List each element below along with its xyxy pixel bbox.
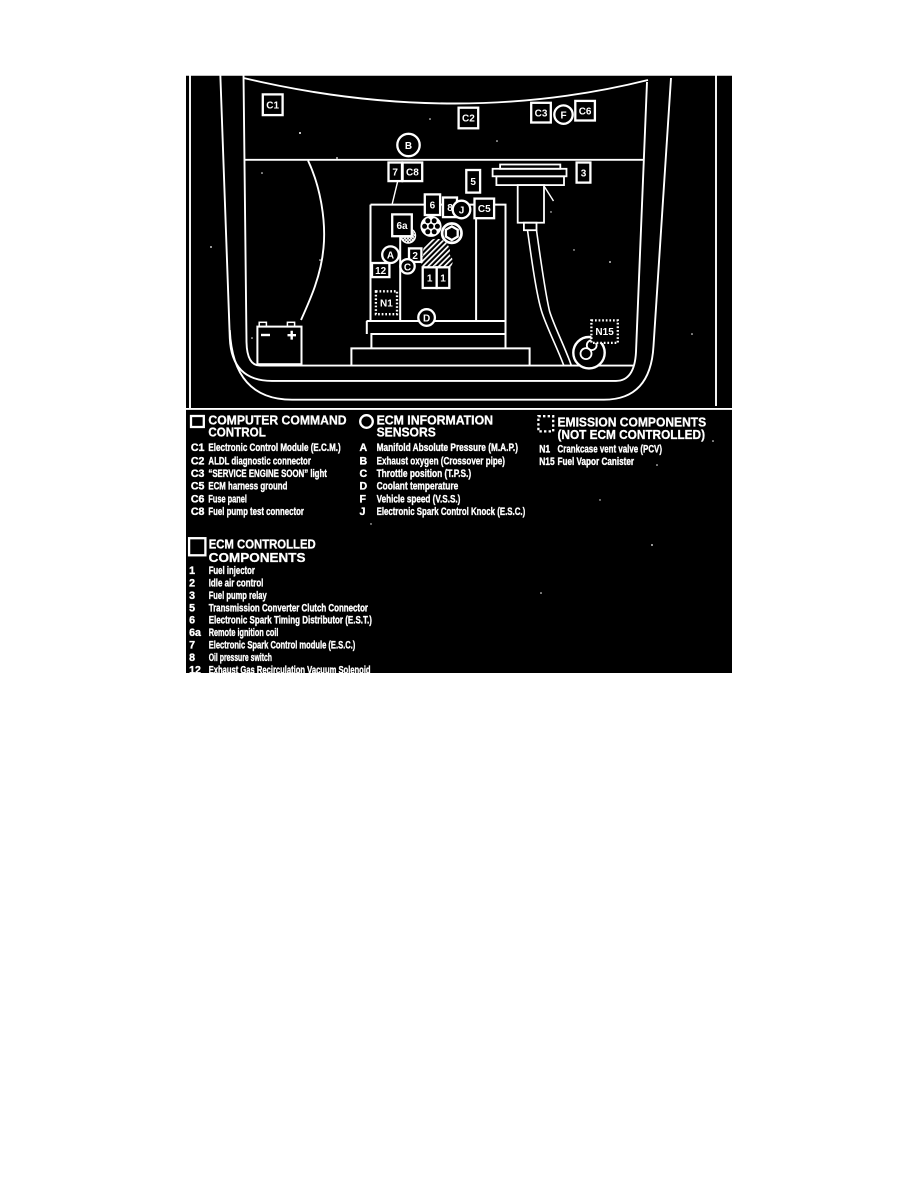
- svg-text:N1: N1: [380, 298, 393, 309]
- svg-text:3: 3: [189, 590, 195, 602]
- svg-text:6a: 6a: [189, 627, 201, 639]
- svg-text:SENSORS: SENSORS: [377, 425, 436, 440]
- svg-text:J: J: [360, 506, 366, 518]
- svg-text:8: 8: [189, 652, 195, 664]
- svg-text:C: C: [404, 262, 411, 273]
- svg-text:3: 3: [581, 168, 587, 179]
- svg-text:A: A: [387, 251, 394, 262]
- svg-text:(NOT ECM CONTROLLED): (NOT ECM CONTROLLED): [558, 427, 706, 442]
- svg-text:Exhaust Gas Recirculation Vacu: Exhaust Gas Recirculation Vacuum Solenoi…: [209, 664, 371, 673]
- svg-text:ALDL diagnostic connector: ALDL diagnostic connector: [208, 455, 311, 467]
- svg-text:Fuel pump relay: Fuel pump relay: [209, 590, 267, 602]
- svg-text:Fuse panel: Fuse panel: [208, 493, 247, 505]
- svg-text:Exhaust oxygen (Crossover pipe: Exhaust oxygen (Crossover pipe): [377, 455, 505, 467]
- svg-text:N15: N15: [539, 456, 555, 468]
- svg-text:1: 1: [189, 565, 195, 577]
- svg-text:Manifold Absolute Pressure (M.: Manifold Absolute Pressure (M.A.P.): [377, 442, 518, 454]
- svg-text:“SERVICE ENGINE SOON” light: “SERVICE ENGINE SOON” light: [208, 468, 327, 480]
- svg-text:1: 1: [440, 273, 446, 284]
- svg-text:12: 12: [189, 664, 201, 673]
- svg-text:C2: C2: [462, 114, 475, 125]
- svg-text:C6: C6: [191, 493, 205, 505]
- svg-text:C: C: [360, 468, 368, 480]
- svg-text:COMPONENTS: COMPONENTS: [209, 550, 306, 565]
- svg-text:1: 1: [427, 273, 433, 284]
- svg-text:Electronic Spark Timing Distri: Electronic Spark Timing Distributor (E.S…: [209, 615, 372, 627]
- svg-text:2: 2: [189, 578, 195, 590]
- svg-text:5: 5: [189, 602, 195, 614]
- svg-text:B: B: [360, 455, 368, 467]
- svg-text:C1: C1: [266, 100, 279, 111]
- svg-text:Throttle position (T.P.S.): Throttle position (T.P.S.): [377, 468, 472, 480]
- svg-text:7: 7: [392, 168, 398, 179]
- svg-text:Crankcase vent valve (PCV): Crankcase vent valve (PCV): [558, 443, 663, 455]
- svg-text:J: J: [459, 206, 465, 217]
- svg-text:C8: C8: [406, 168, 419, 179]
- svg-text:CONTROL: CONTROL: [208, 425, 265, 440]
- svg-text:C5: C5: [191, 480, 205, 492]
- svg-text:Transmission Converter Clutch: Transmission Converter Clutch Connector: [209, 602, 368, 614]
- svg-text:A: A: [360, 442, 368, 454]
- svg-text:12: 12: [375, 266, 387, 277]
- svg-text:C5: C5: [478, 204, 491, 215]
- svg-text:2: 2: [412, 251, 418, 262]
- svg-text:N1: N1: [539, 443, 550, 455]
- svg-text:6a: 6a: [396, 221, 408, 232]
- svg-text:C2: C2: [191, 455, 205, 467]
- svg-text:C1: C1: [191, 442, 205, 454]
- svg-text:Idle air control: Idle air control: [209, 578, 264, 590]
- svg-text:Remote ignition coil: Remote ignition coil: [209, 627, 279, 639]
- svg-text:Fuel injector: Fuel injector: [209, 565, 255, 577]
- svg-text:ECM harness ground: ECM harness ground: [208, 480, 287, 492]
- svg-text:Fuel Vapor Canister: Fuel Vapor Canister: [558, 456, 635, 468]
- svg-text:Electronic Spark Control modul: Electronic Spark Control module (E.S.C.): [209, 639, 356, 651]
- svg-text:Coolant temperature: Coolant temperature: [377, 480, 459, 492]
- svg-text:C3: C3: [191, 468, 205, 480]
- svg-text:Electronic Spark Control Knock: Electronic Spark Control Knock (E.S.C.): [377, 506, 526, 518]
- svg-text:F: F: [360, 493, 367, 505]
- svg-text:Electronic Control Module (E.C: Electronic Control Module (E.C.M.): [208, 442, 340, 454]
- svg-text:F: F: [560, 111, 566, 122]
- svg-text:C3: C3: [535, 108, 548, 119]
- svg-text:6: 6: [430, 200, 436, 211]
- svg-text:Fuel pump test connector: Fuel pump test connector: [208, 506, 304, 518]
- svg-text:7: 7: [189, 639, 195, 651]
- svg-text:B: B: [405, 141, 412, 152]
- svg-text:5: 5: [470, 177, 476, 188]
- svg-text:Oil pressure switch: Oil pressure switch: [209, 652, 272, 664]
- svg-text:C6: C6: [579, 106, 592, 117]
- svg-text:N15: N15: [595, 327, 614, 338]
- svg-text:C8: C8: [191, 506, 205, 518]
- svg-text:D: D: [423, 314, 430, 325]
- svg-text:D: D: [360, 480, 368, 492]
- svg-text:6: 6: [189, 615, 195, 627]
- svg-text:Vehicle speed (V.S.S.): Vehicle speed (V.S.S.): [377, 493, 461, 505]
